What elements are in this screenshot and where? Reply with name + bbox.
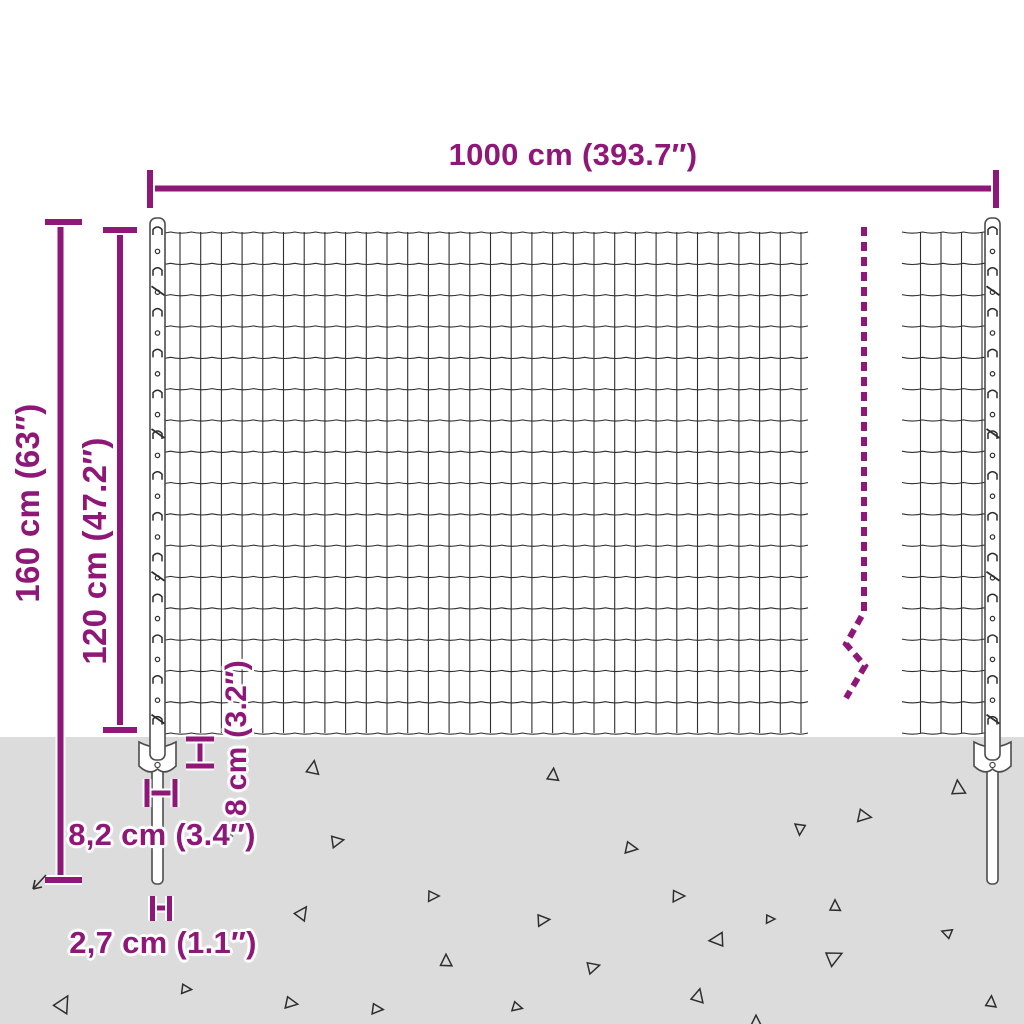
dimension-label-total-width: 1000 cm (393.7″) (449, 137, 698, 173)
dimension-label-anchor-plate-depth: 8 cm (3.2″) (220, 660, 254, 816)
break-dashed-line (846, 227, 865, 698)
dimension-label-spike-width: 2,7 cm (1.1″) (69, 925, 257, 961)
dimension-label-panel-height: 120 cm (47.2″) (76, 437, 114, 664)
dimension-label-total-height: 160 cm (63″) (9, 403, 47, 602)
dimension-label-anchor-plate-width: 8,2 cm (3.4″) (68, 817, 256, 853)
mesh-panels (150, 232, 999, 734)
panel-break-line (846, 227, 865, 698)
fence-dimension-diagram: 1000 cm (393.7″) 160 cm (63″) 120 cm (47… (0, 0, 1024, 1024)
fence-posts (150, 218, 1000, 760)
